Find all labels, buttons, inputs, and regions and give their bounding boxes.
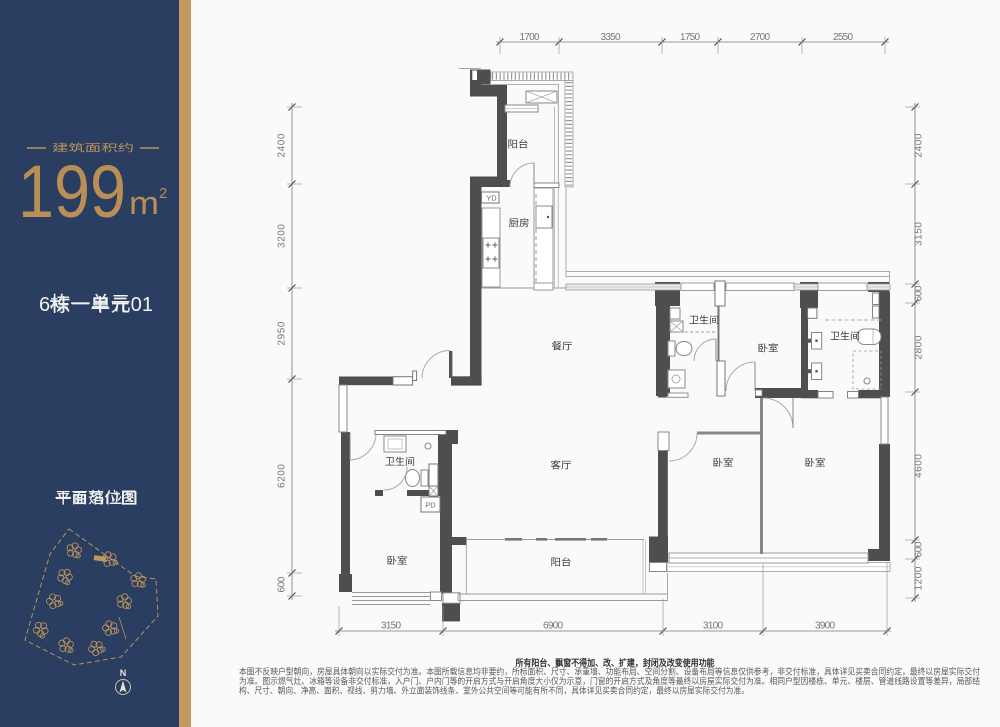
svg-text:为准。图示燃气灶、冰箱等设备非交付标准，入户门、户内门等的开: 为准。图示燃气灶、冰箱等设备非交付标准，入户门、户内门等的开启方式与开启角度大小… xyxy=(239,675,980,686)
svg-text:构、尺寸、朝向、净高、面积、视线、剪力墙、外立面装饰线条、室: 构、尺寸、朝向、净高、面积、视线、剪力墙、外立面装饰线条、室外公共空间等可能有所… xyxy=(239,685,749,696)
svg-text:本图不反映户型朝向，房屋具体朝向以实际交付为准。本图所载信息: 本图不反映户型朝向，房屋具体朝向以实际交付为准。本图所载信息均非要约，所标面积、… xyxy=(239,666,980,677)
